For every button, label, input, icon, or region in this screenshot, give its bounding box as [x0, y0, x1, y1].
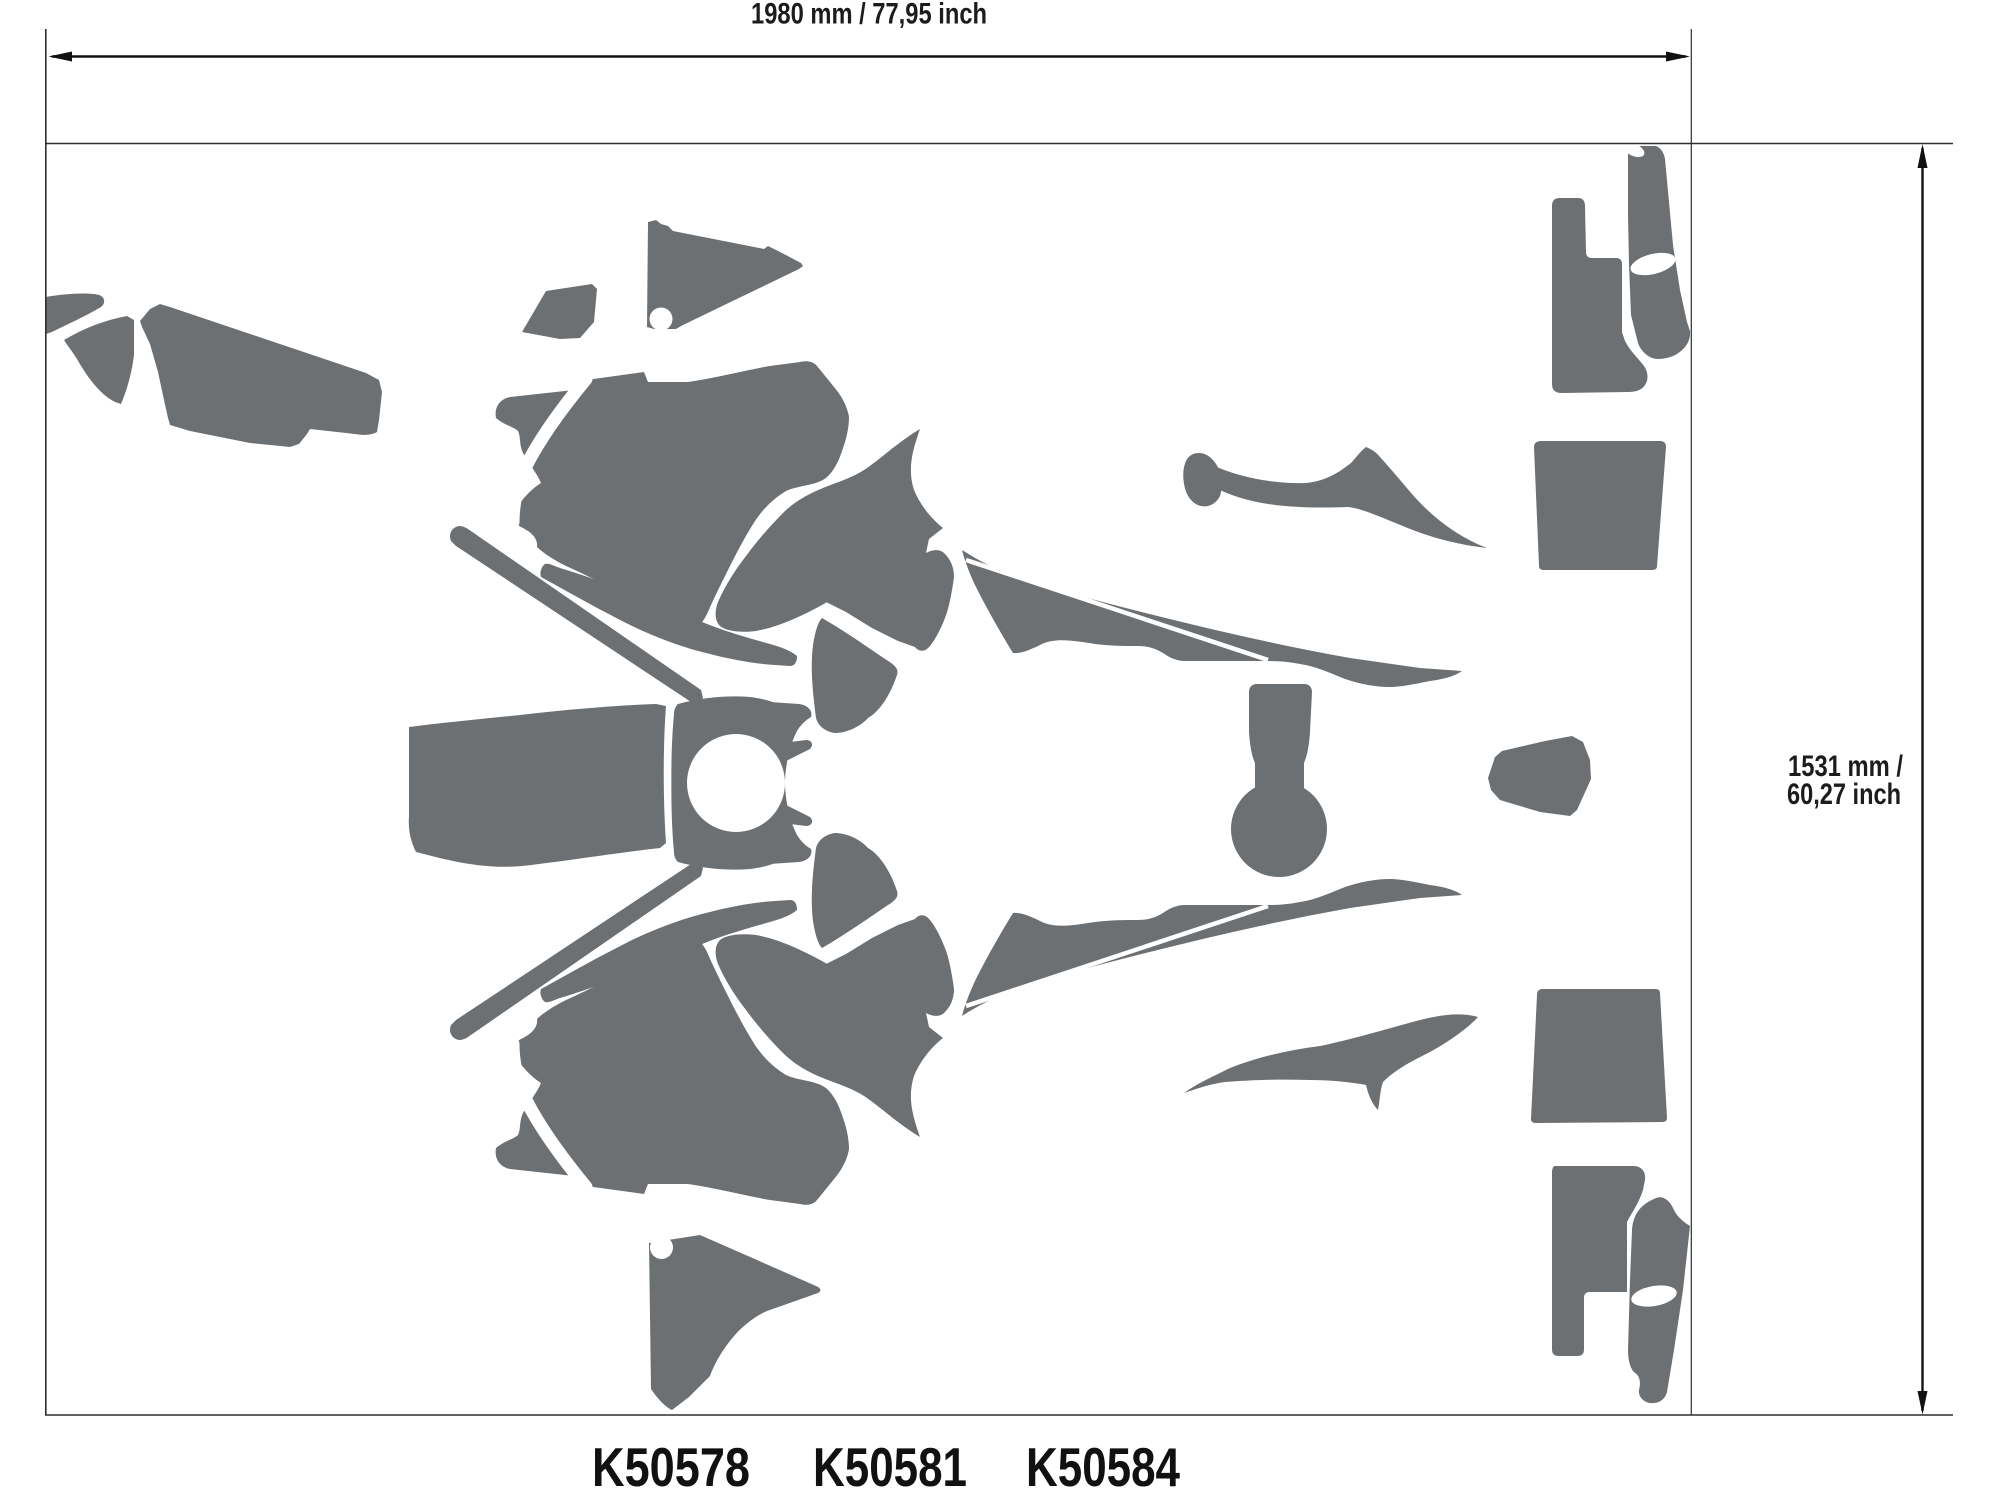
svg-text:60,27 inch: 60,27 inch	[1787, 778, 1901, 811]
svg-text:K50584: K50584	[1026, 1436, 1180, 1498]
svg-text:K50578: K50578	[592, 1436, 750, 1498]
svg-text:K50581: K50581	[813, 1436, 967, 1498]
svg-text:1980 mm / 77,95 inch: 1980 mm / 77,95 inch	[751, 0, 987, 31]
